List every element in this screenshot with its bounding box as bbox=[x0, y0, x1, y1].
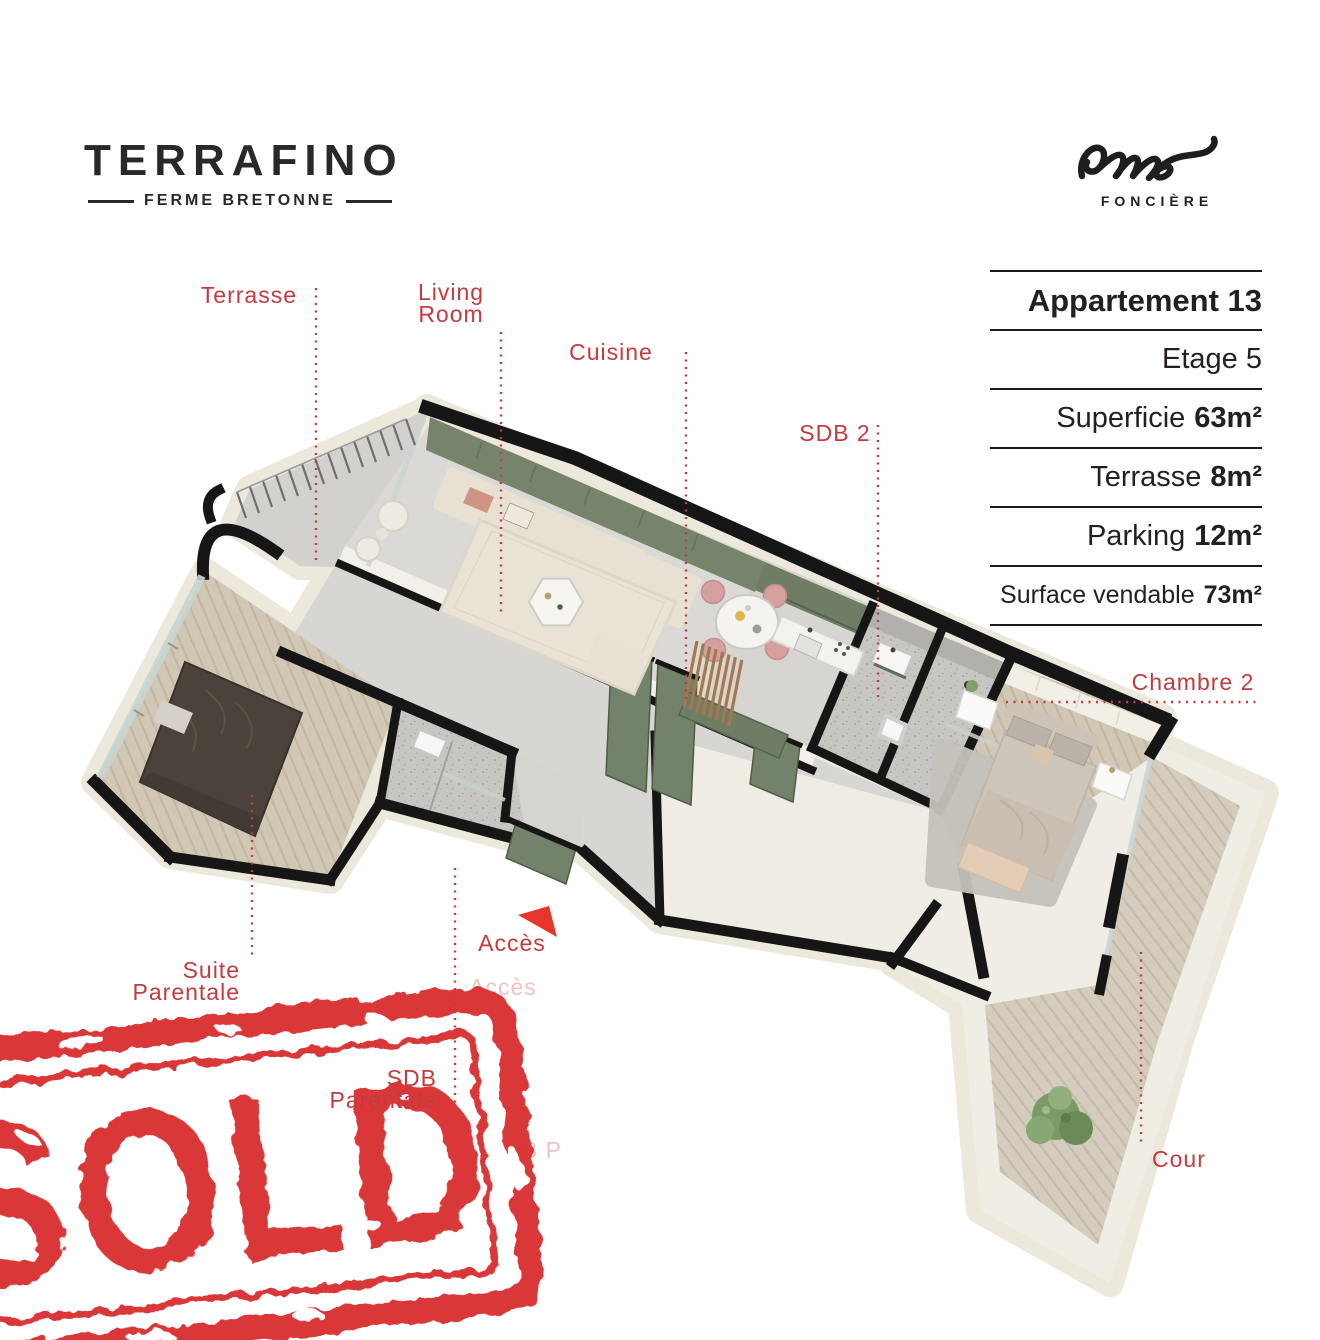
label-cour: Cour bbox=[1152, 1146, 1206, 1172]
terrace-chair bbox=[378, 501, 408, 531]
label-sdbp-line2: Parentale bbox=[330, 1087, 437, 1113]
sold-stamp: SOLD bbox=[0, 989, 539, 1340]
label-chambre2: Chambre 2 bbox=[1132, 669, 1255, 695]
label-sdb2: SDB 2 bbox=[799, 420, 870, 446]
label-acces: Accès bbox=[478, 930, 546, 956]
label-terrasse: Terrasse bbox=[201, 282, 297, 308]
page: TERRAFINO FERME BRETONNE FONCIÈRE Appart… bbox=[0, 0, 1320, 1340]
label-cuisine: Cuisine bbox=[569, 339, 653, 365]
label-suite-line2: Parentale bbox=[133, 979, 240, 1005]
floor-plan: Accès B P SOLD bbox=[0, 0, 1320, 1340]
terrace-side-table bbox=[376, 528, 388, 540]
terrace-chair-2 bbox=[356, 537, 380, 561]
label-living-line2: Room bbox=[418, 301, 483, 327]
